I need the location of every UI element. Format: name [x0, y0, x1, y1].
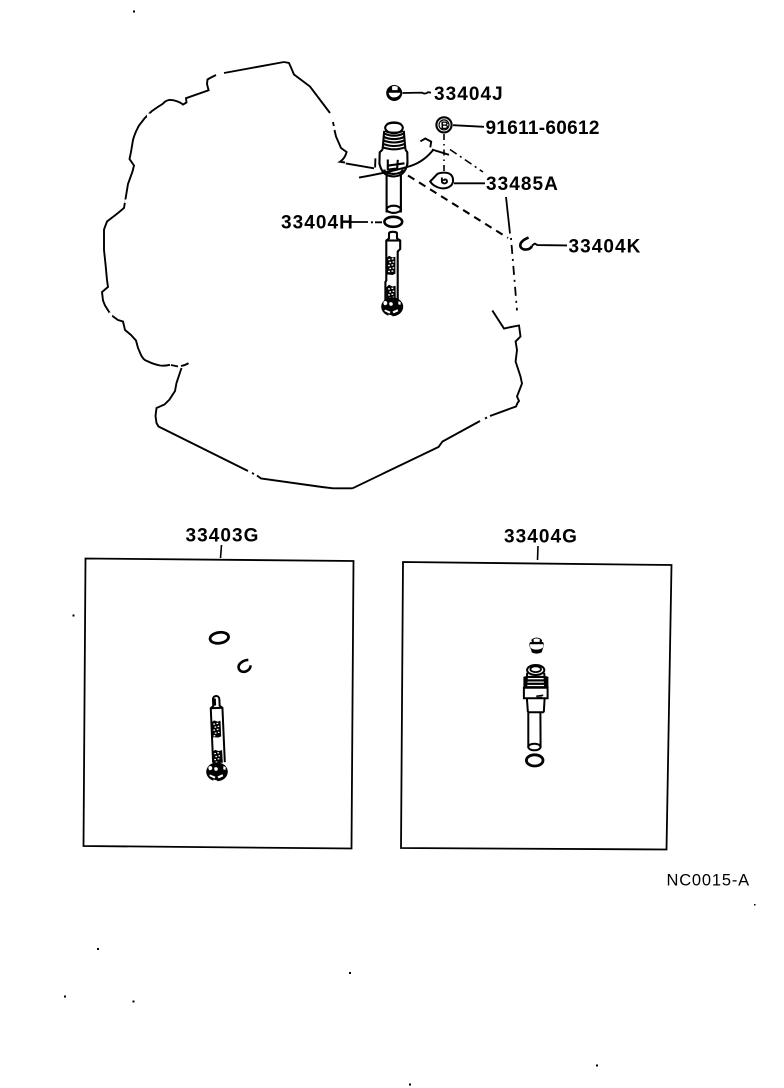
svg-text:33485A: 33485A: [486, 174, 559, 195]
svg-text:33403G: 33403G: [186, 526, 260, 547]
svg-text:B: B: [441, 120, 449, 132]
svg-text:33404G: 33404G: [504, 527, 578, 548]
svg-text:NC0015-A: NC0015-A: [667, 872, 750, 890]
svg-text:33404K: 33404K: [569, 237, 642, 258]
svg-text:33404J: 33404J: [434, 84, 504, 105]
svg-text:33404H: 33404H: [281, 213, 354, 234]
svg-text:91611-60612: 91611-60612: [486, 118, 600, 139]
